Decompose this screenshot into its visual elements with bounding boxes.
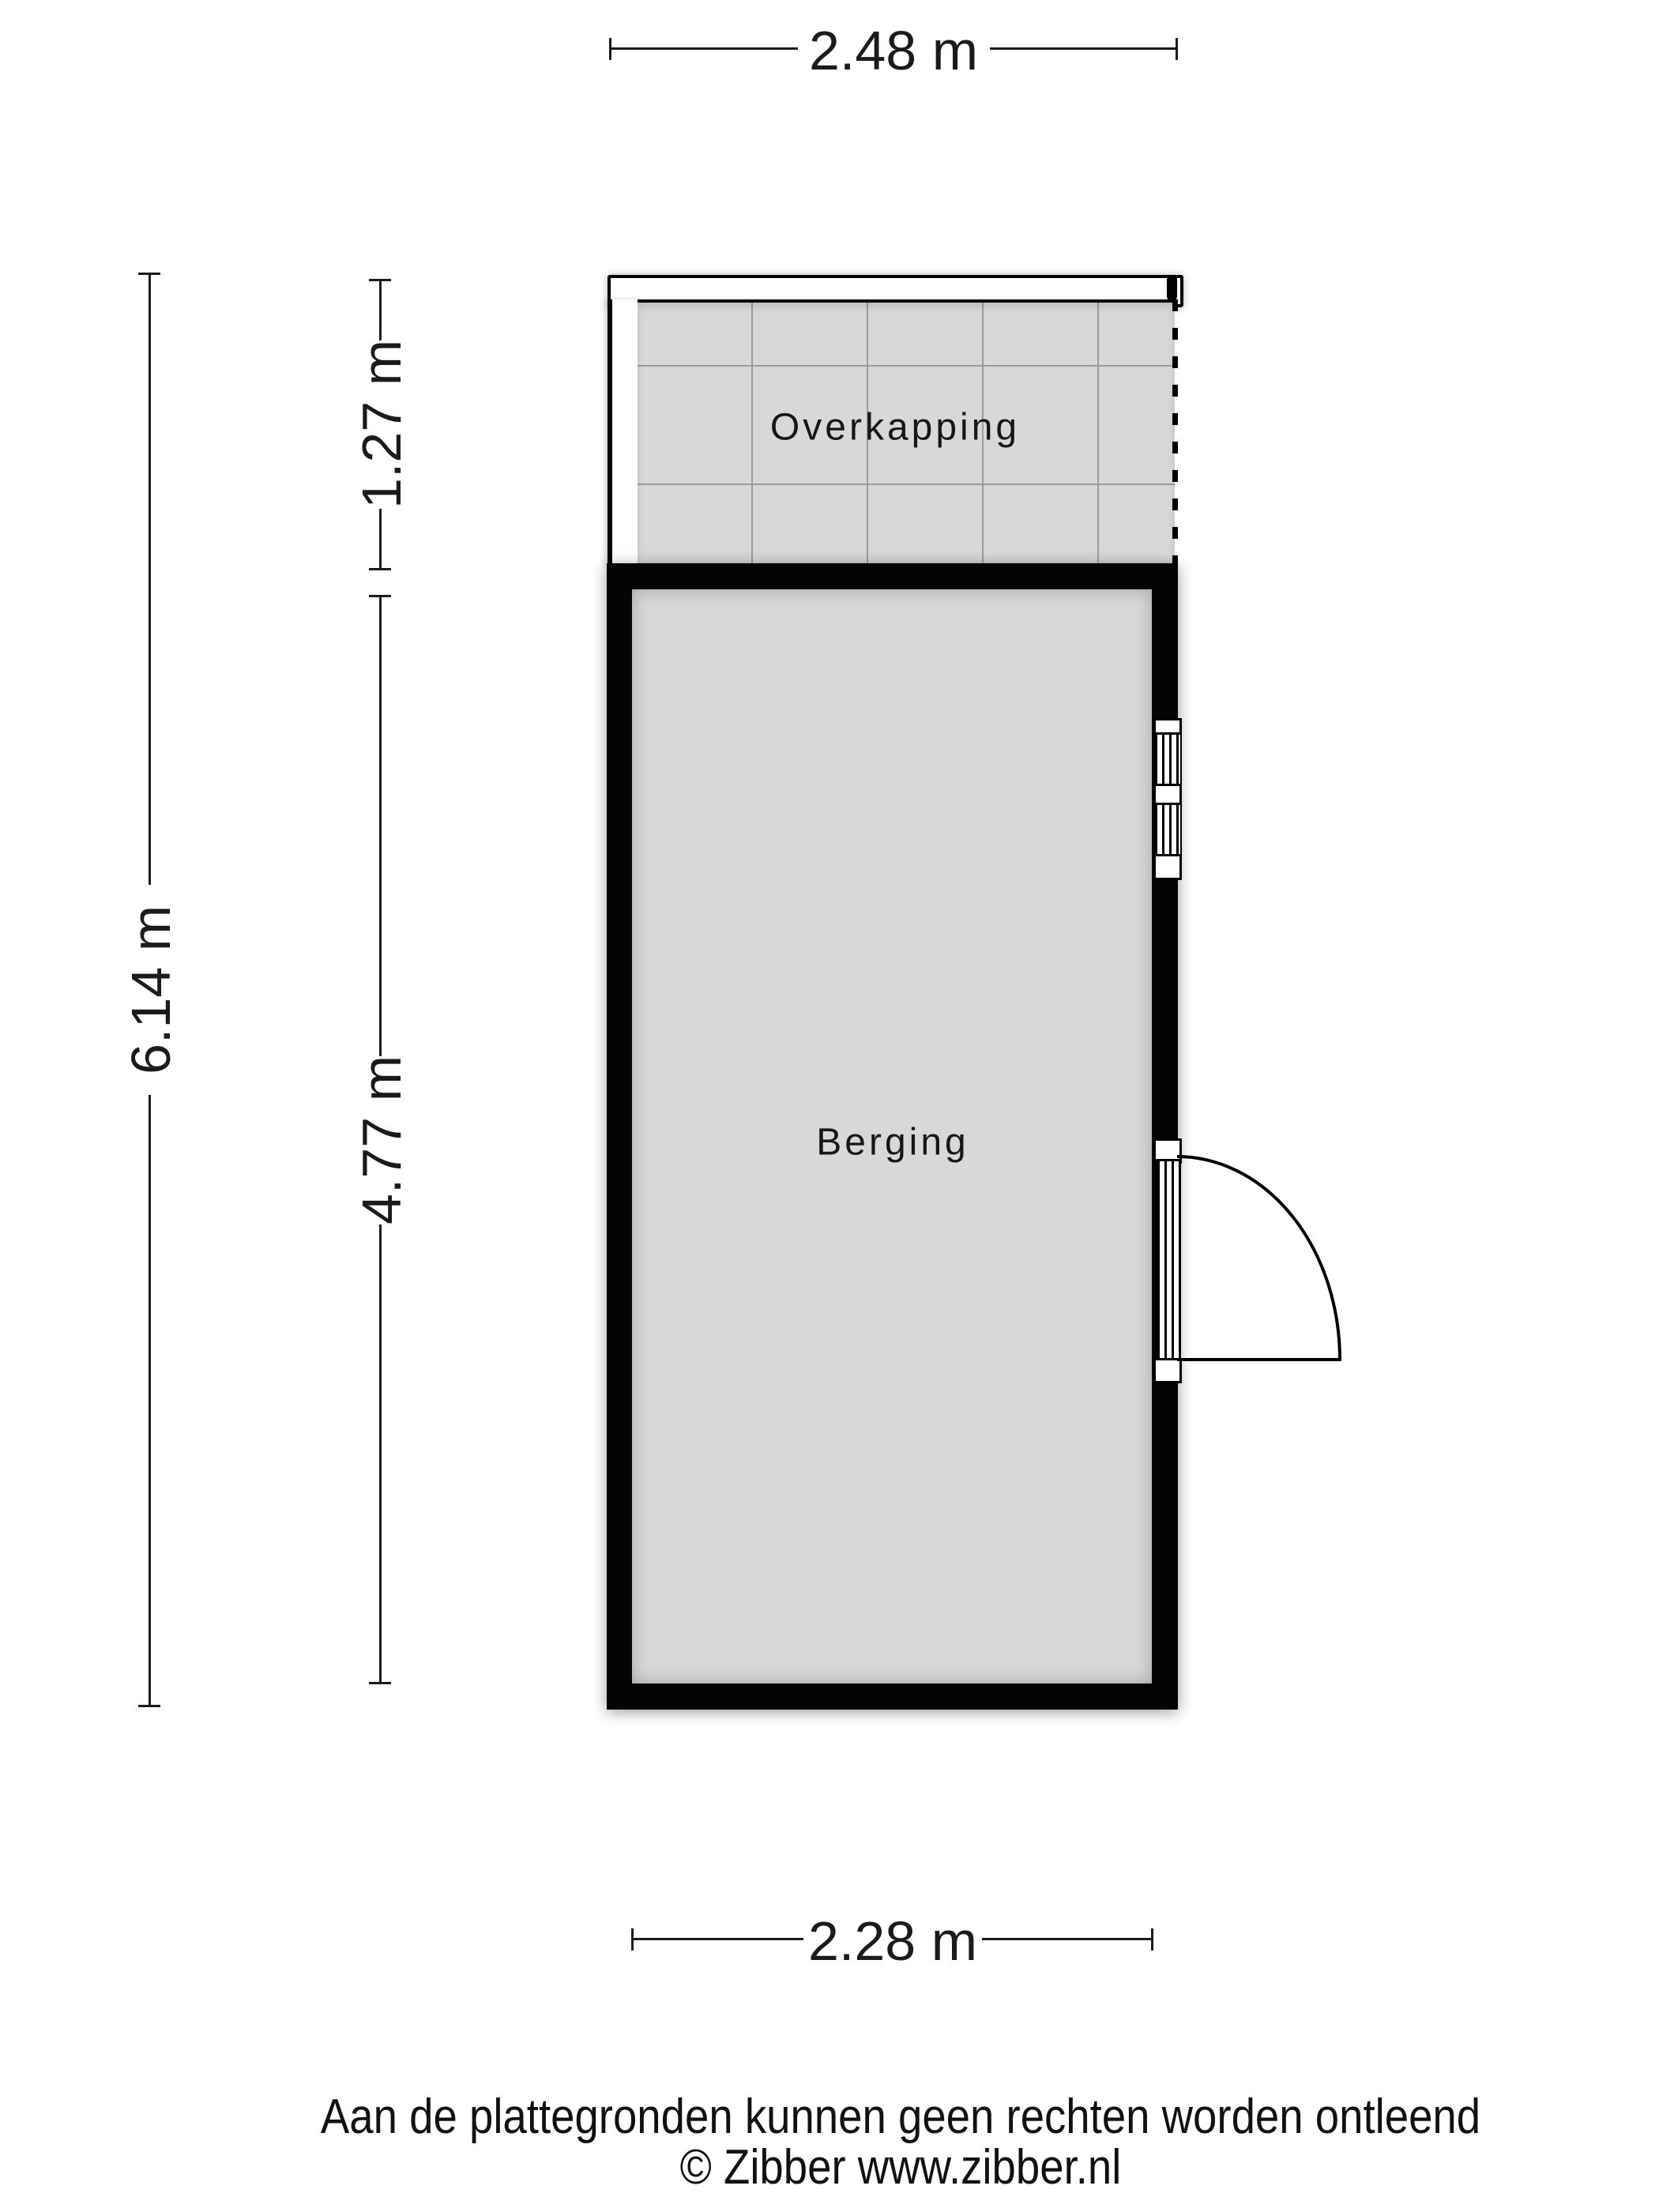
dim-tick	[1151, 1928, 1153, 1951]
dim-line	[149, 274, 151, 885]
dim-line	[379, 280, 382, 340]
canopy-open-edge-dashed-line	[1172, 299, 1178, 565]
window-symbol	[1153, 718, 1182, 880]
dim-tick	[369, 568, 391, 570]
footer-copyright: © Zibber www.zibber.nl	[680, 2142, 1122, 2193]
dim-line	[611, 47, 798, 50]
dim-line	[379, 596, 382, 1056]
dimension-left-inner-lower-label: 4.77 m	[354, 1055, 409, 1224]
dim-line	[633, 1938, 803, 1940]
dim-line	[982, 1938, 1153, 1940]
dim-tick	[369, 1682, 391, 1684]
floorplan-canvas: 2.48 m 6.14 m 1.27 m 4.77 m 2.28 m	[0, 0, 1659, 2212]
dim-tick	[1176, 38, 1178, 60]
dimension-bottom-label: 2.28 m	[808, 1913, 977, 1969]
dimension-top-label: 2.48 m	[809, 23, 978, 78]
room-label-overkapping: Overkapping	[770, 406, 1020, 450]
dim-line	[379, 509, 382, 570]
dimension-left-outer-label: 6.14 m	[123, 905, 179, 1074]
dim-line	[149, 1095, 151, 1706]
dim-line	[990, 47, 1177, 50]
dim-tick	[138, 1705, 160, 1707]
room-label-berging: Berging	[816, 1121, 969, 1164]
footer-disclaimer: Aan de plattegronden kunnen geen rechten…	[321, 2092, 1480, 2142]
window-glazing-stripes	[1155, 732, 1180, 786]
dim-line	[379, 1224, 382, 1683]
window-glazing-stripes	[1155, 803, 1180, 856]
canopy-beam-end-cap	[1167, 275, 1177, 301]
door-swing-arc-icon	[1176, 1155, 1345, 1363]
dimension-left-inner-upper-label: 1.27 m	[354, 340, 409, 509]
